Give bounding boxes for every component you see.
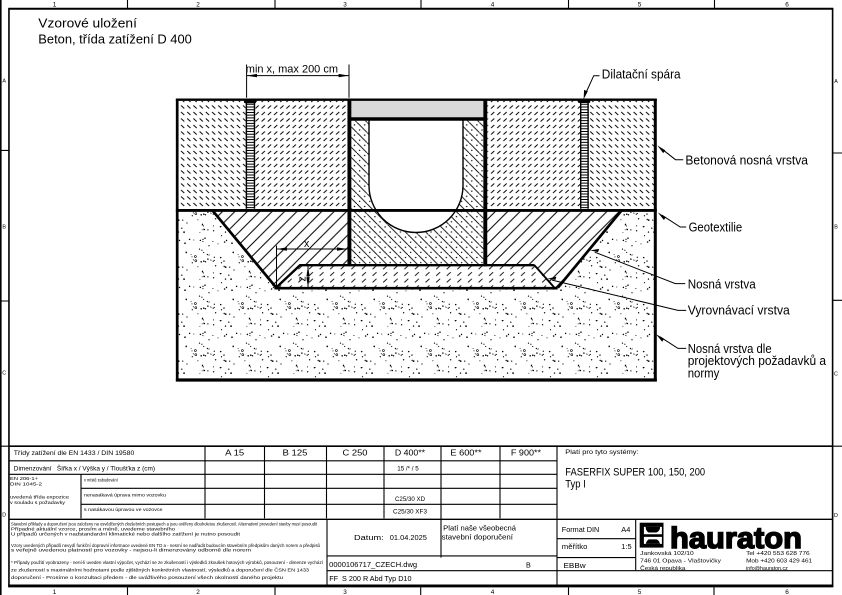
svg-text:E 600**: E 600** (450, 447, 482, 457)
svg-text:F 900**: F 900** (511, 447, 542, 457)
svg-text:EBBw: EBBw (564, 561, 587, 570)
svg-text:2: 2 (196, 2, 200, 9)
svg-text:FF S 200 R Abd Typ D10: FF S 200 R Abd Typ D10 (329, 574, 411, 583)
svg-text:A 15: A 15 (225, 447, 244, 457)
svg-text:v místě zabudování: v místě zabudování (84, 478, 118, 484)
svg-text:B 125: B 125 (283, 447, 308, 457)
svg-text:Nosná vrstva: Nosná vrstva (688, 278, 756, 292)
svg-text:2: 2 (196, 589, 200, 595)
svg-text:min x, max 200 cm: min x, max 200 cm (246, 64, 338, 76)
svg-text:C: C (834, 372, 838, 378)
svg-text:1: 1 (53, 589, 57, 595)
svg-text:C25/30 XF3: C25/30 XF3 (393, 508, 427, 515)
svg-text:v souladu s požadavky: v souladu s požadavky (10, 500, 66, 506)
svg-text:5: 5 (638, 2, 642, 9)
svg-text:Geotextilie: Geotextilie (689, 220, 743, 234)
svg-text:746 01 Opava - Vlaštovičky: 746 01 Opava - Vlaštovičky (640, 558, 721, 564)
svg-text:Tel +420 553 628 776: Tel +420 553 628 776 (746, 551, 810, 557)
svg-text:4: 4 (491, 589, 495, 595)
svg-text:uvedená třída expozice: uvedená třída expozice (10, 494, 69, 500)
svg-text:A: A (2, 79, 6, 85)
svg-text:Betonová nosná vrstva: Betonová nosná vrstva (685, 153, 808, 167)
svg-text:B: B (526, 561, 531, 570)
svg-text:C25/30 XD: C25/30 XD (395, 496, 425, 503)
svg-text:DIN 1045-2: DIN 1045-2 (10, 481, 42, 487)
svg-text:Format DIN: Format DIN (562, 525, 600, 534)
svg-text:U případů určených v nadstanda: U případů určených v nadstandardní klima… (11, 532, 241, 537)
svg-text:x: x (304, 238, 310, 250)
svg-text:* Případy použití vyobrazeny -: * Případy použití vyobrazeny - není-li u… (11, 559, 324, 566)
svg-text:D: D (2, 513, 6, 519)
svg-text:6: 6 (785, 2, 789, 9)
svg-text:A4: A4 (621, 525, 630, 534)
svg-text:1: 1 (53, 2, 57, 9)
svg-text:B: B (834, 225, 838, 231)
svg-text:Třídy zatížení dle EN 1433 / D: Třídy zatížení dle EN 1433 / DIN 19580 (14, 450, 135, 457)
svg-text:EN 206-1+: EN 206-1+ (10, 476, 38, 482)
svg-text:nenasákavá úprava mimo vozovku: nenasákavá úprava mimo vozovku (84, 493, 166, 499)
svg-text:Česká republika: Česká republika (640, 565, 686, 572)
svg-text:Dilatační spára: Dilatační spára (602, 68, 681, 82)
svg-text:Platí naše všeobecná: Platí naše všeobecná (443, 524, 517, 533)
svg-text:z: z (297, 276, 309, 281)
svg-text:Datum:: Datum: (354, 533, 384, 542)
svg-text:01.04.2025: 01.04.2025 (390, 533, 427, 542)
svg-text:4: 4 (491, 2, 495, 9)
svg-text:B: B (2, 225, 6, 231)
svg-text:D 400**: D 400** (395, 447, 426, 457)
svg-text:3: 3 (343, 589, 347, 595)
svg-text:info@hauraton.cz: info@hauraton.cz (746, 566, 788, 572)
svg-text:Typ I: Typ I (565, 478, 586, 490)
svg-text:5: 5 (638, 589, 642, 595)
svg-text:C 250: C 250 (343, 447, 368, 457)
svg-text:6: 6 (785, 589, 789, 595)
svg-text:měřítko: měřítko (562, 542, 588, 551)
svg-text:C: C (2, 371, 6, 377)
svg-text:Vyrovnávací vrstva: Vyrovnávací vrstva (688, 303, 790, 317)
svg-text:Platí pro tyto systémy:: Platí pro tyto systémy: (565, 449, 638, 456)
svg-text:0000106717_CZECH.dwg: 0000106717_CZECH.dwg (329, 560, 417, 569)
svg-text:stavební doporučení: stavební doporučení (442, 533, 514, 542)
svg-text:Beton, třída zatížení D 400: Beton, třída zatížení D 400 (38, 32, 192, 46)
svg-text:FASERFIX SUPER 100, 150, 200: FASERFIX SUPER 100, 150, 200 (565, 466, 705, 478)
svg-text:Dimenzování Šířka x / Výška: Dimenzování Šířka x / Výška y / Tloušťka… (14, 464, 155, 473)
svg-text:3: 3 (343, 2, 347, 9)
svg-text:15 /* / 5: 15 /* / 5 (397, 465, 419, 472)
svg-text:ze zkušeností s maximálními ho: ze zkušeností s maximálními hodnotami po… (11, 566, 309, 573)
svg-text:Vzorové uložení: Vzorové uložení (38, 16, 137, 30)
svg-text:normy: normy (688, 366, 720, 380)
svg-text:A: A (834, 79, 838, 85)
svg-text:D: D (834, 513, 838, 519)
svg-text:Mob +420 603 429 461: Mob +420 603 429 461 (746, 558, 812, 564)
svg-text:Jankovská 102/10: Jankovská 102/10 (640, 551, 694, 557)
svg-text:s veřejně uvedenou platností p: s veřejně uvedenou platností pro vozovky… (11, 548, 251, 553)
svg-text:s nasákavou úpravou ve vozovce: s nasákavou úpravou ve vozovce (84, 507, 163, 513)
svg-text:doporučení - Prosíme o konzult: doporučení - Prosíme o konzultaci předem… (11, 575, 283, 581)
svg-text:1:5: 1:5 (621, 542, 631, 551)
